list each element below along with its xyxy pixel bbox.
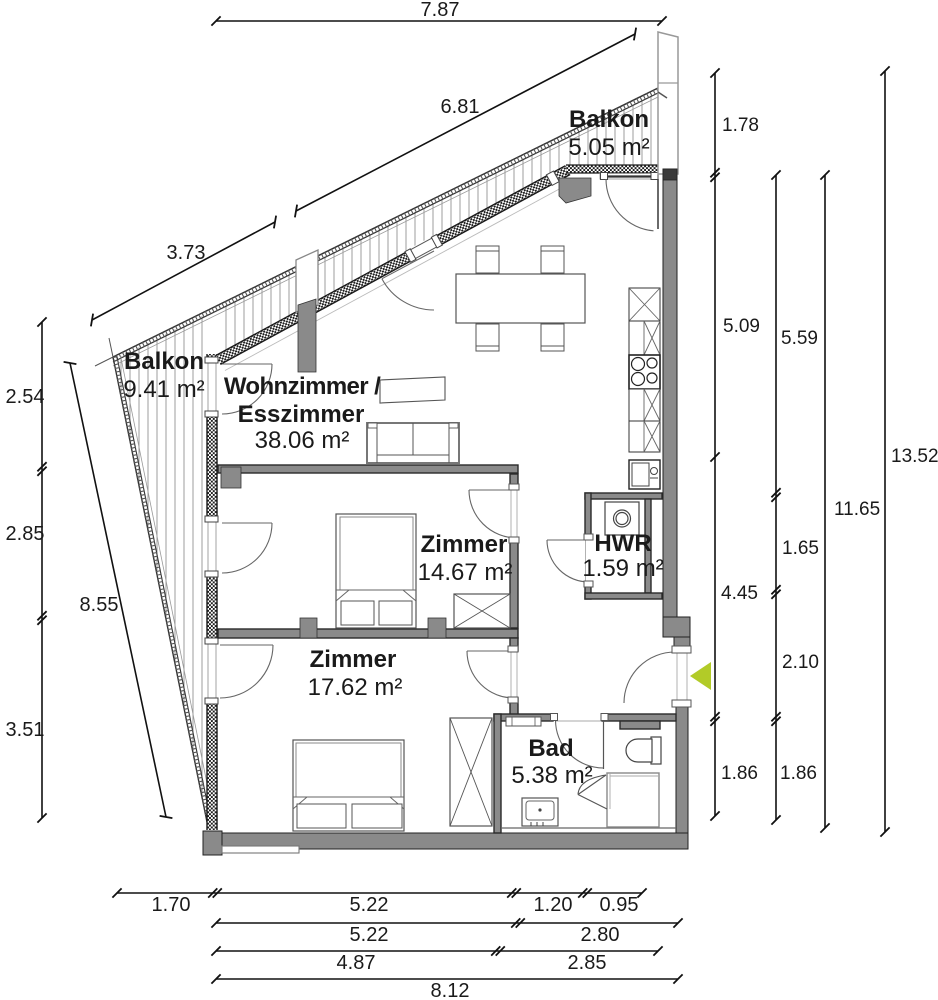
svg-text:9.41 m²: 9.41 m² <box>123 376 204 403</box>
svg-text:14.67 m²: 14.67 m² <box>418 559 513 586</box>
svg-text:HWR: HWR <box>594 530 651 557</box>
svg-text:1.65: 1.65 <box>782 538 819 559</box>
svg-text:Bad: Bad <box>528 735 573 762</box>
svg-text:5.22: 5.22 <box>350 894 389 916</box>
svg-text:1.70: 1.70 <box>152 894 191 916</box>
svg-text:5.38 m²: 5.38 m² <box>511 762 592 789</box>
svg-text:8.12: 8.12 <box>431 980 470 1000</box>
svg-text:2.54: 2.54 <box>6 386 45 408</box>
svg-text:17.62 m²: 17.62 m² <box>308 674 403 701</box>
svg-text:Zimmer: Zimmer <box>421 531 508 558</box>
svg-text:8.55: 8.55 <box>80 594 119 616</box>
svg-text:5.59: 5.59 <box>781 328 818 349</box>
svg-text:4.45: 4.45 <box>721 583 758 604</box>
svg-text:2.85: 2.85 <box>6 523 45 545</box>
svg-text:38.06 m²: 38.06 m² <box>255 427 350 454</box>
svg-text:Zimmer: Zimmer <box>310 646 397 673</box>
svg-text:4.87: 4.87 <box>337 952 376 974</box>
svg-text:3.51: 3.51 <box>6 719 45 741</box>
svg-text:11.65: 11.65 <box>834 499 880 520</box>
svg-text:Esszimmer: Esszimmer <box>238 401 365 428</box>
svg-text:0.95: 0.95 <box>600 894 639 916</box>
svg-text:1.86: 1.86 <box>721 763 758 784</box>
svg-text:Balkon: Balkon <box>569 106 649 133</box>
svg-text:2.10: 2.10 <box>782 652 819 673</box>
svg-text:2.85: 2.85 <box>568 952 607 974</box>
svg-text:1.20: 1.20 <box>534 894 573 916</box>
svg-text:6.81: 6.81 <box>441 96 480 118</box>
svg-text:7.87: 7.87 <box>421 0 460 21</box>
svg-text:13.52: 13.52 <box>891 446 938 467</box>
svg-text:Wohnzimmer /: Wohnzimmer / <box>224 373 381 400</box>
svg-text:1.78: 1.78 <box>722 115 759 136</box>
svg-text:1.59 m²: 1.59 m² <box>582 555 663 582</box>
svg-text:2.80: 2.80 <box>581 924 620 946</box>
svg-text:5.09: 5.09 <box>723 316 760 337</box>
svg-text:3.73: 3.73 <box>167 242 206 264</box>
svg-text:5.05 m²: 5.05 m² <box>568 134 649 161</box>
svg-text:1.86: 1.86 <box>780 763 817 784</box>
svg-text:5.22: 5.22 <box>350 924 389 946</box>
svg-text:Balkon: Balkon <box>124 348 204 375</box>
